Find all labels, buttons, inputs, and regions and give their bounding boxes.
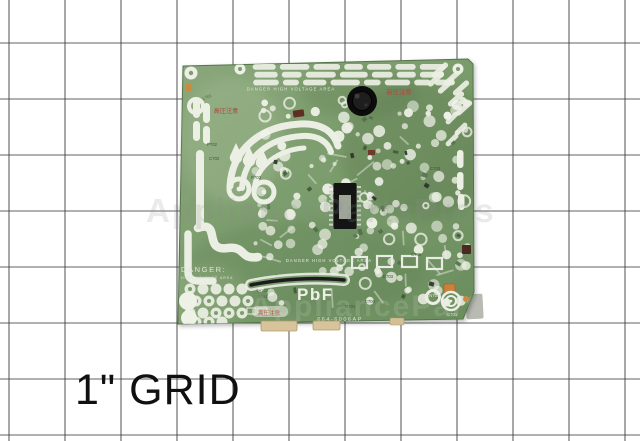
- product-photo-stage: DANGER HIGH VOLTAGE AREA DANGER HIGH VOL…: [0, 0, 640, 441]
- smd-resistor: [368, 150, 375, 155]
- danger-left-title: DANGER:: [181, 265, 226, 274]
- orange-marker: [186, 84, 191, 91]
- ref-P703: P703: [251, 175, 262, 180]
- danger-top-text: DANGER HIGH VOLTAGE AREA: [247, 87, 336, 92]
- ref-E703: E703: [383, 274, 394, 279]
- watermark-main: AppliancePartsPros: [146, 192, 496, 229]
- ref-P702: P702: [207, 142, 218, 147]
- jp-warning-left: 高圧注意: [214, 107, 239, 115]
- pcb-product-photo: DANGER HIGH VOLTAGE AREA DANGER HIGH VOL…: [0, 0, 640, 441]
- ref-C702: C702: [209, 156, 220, 161]
- danger-center-text: DANGER HIGH VOLTAGE AREA: [286, 258, 372, 263]
- smd-cap: [462, 245, 471, 254]
- danger-left-sub: HIGH VOLTAGE AREA: [181, 276, 233, 280]
- grid-caption: 1" GRID: [75, 366, 241, 414]
- jp-warning-top: 高圧注意: [386, 87, 412, 96]
- ref-C705: C705: [411, 252, 422, 257]
- ref-C703: C703: [430, 166, 441, 171]
- round-capacitor: [347, 86, 377, 116]
